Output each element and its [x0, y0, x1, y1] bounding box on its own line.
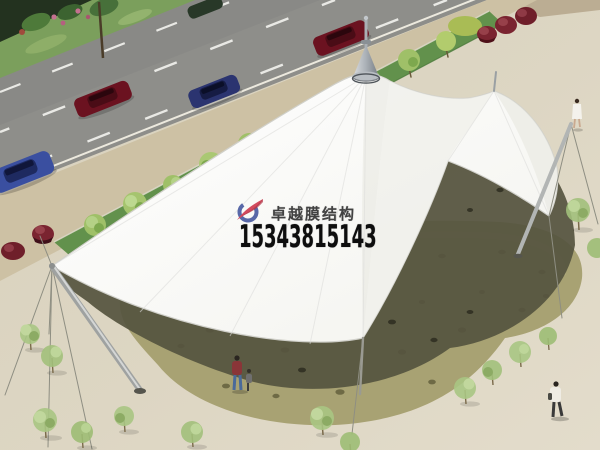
- flowers: [51, 14, 56, 19]
- watermark-phone-number: 15343815143: [239, 219, 377, 255]
- median-foliage: [448, 16, 482, 36]
- rendering-canvas: 卓越膜结构 15343815143: [0, 0, 600, 450]
